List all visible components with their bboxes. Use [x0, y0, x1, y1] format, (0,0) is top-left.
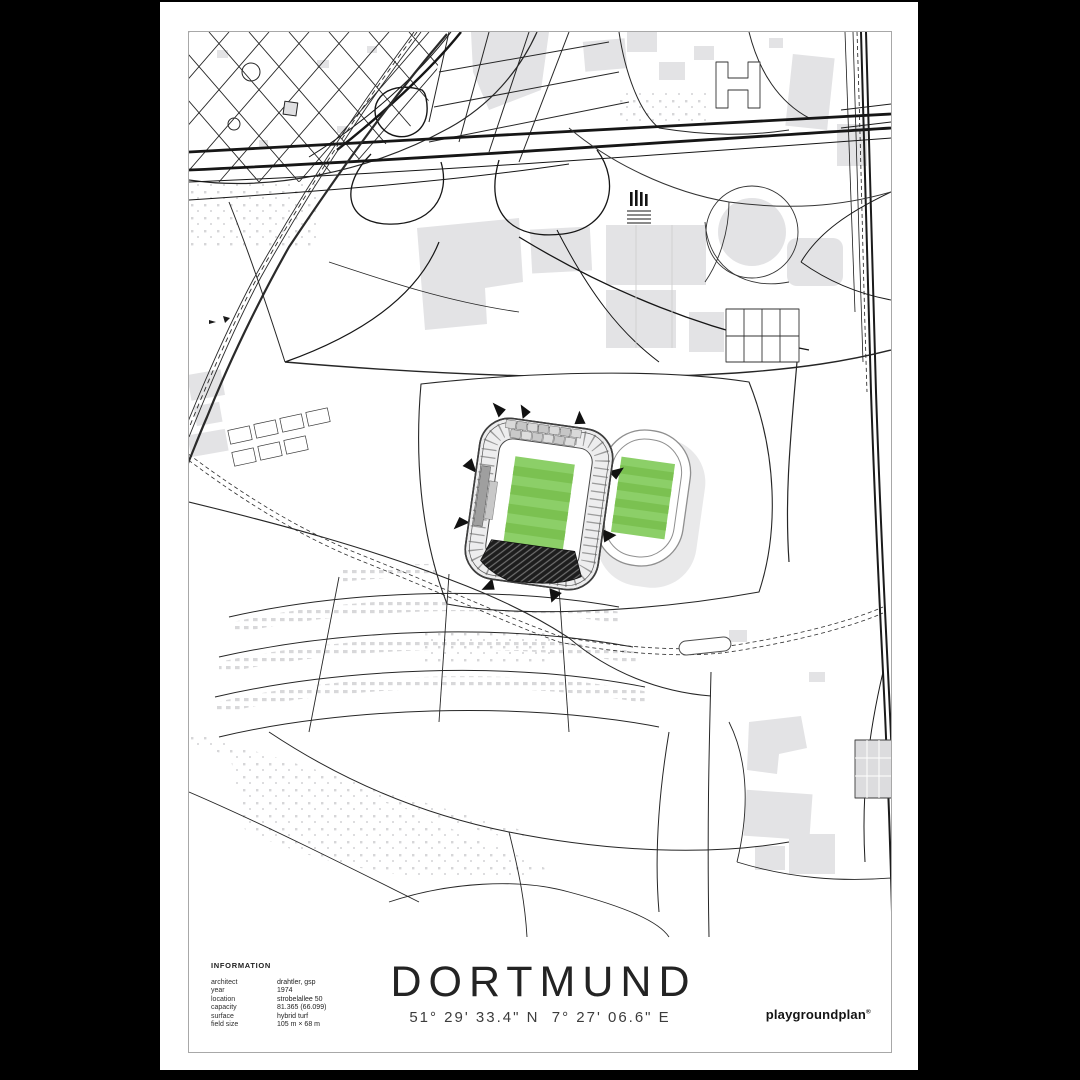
city-title: DORTMUND [189, 958, 891, 1007]
poster-border-frame: INFORMATION architect drahtler, gsp year… [188, 31, 892, 1053]
railway-northwest [189, 32, 447, 470]
brand-logotype: playgroundplan® [766, 1007, 871, 1022]
stadium-pitch [503, 456, 574, 550]
gridded-building-east [855, 740, 891, 798]
floodlight-glyph [627, 190, 651, 223]
registered-trademark-symbol: ® [866, 1009, 871, 1016]
black-backdrop: INFORMATION architect drahtler, gsp year… [0, 0, 1080, 1080]
brand-name: playgroundplan [766, 1007, 866, 1022]
stadium-poster: INFORMATION architect drahtler, gsp year… [160, 2, 918, 1070]
city-map-illustration [189, 32, 891, 942]
allotment-outlines [228, 408, 330, 466]
